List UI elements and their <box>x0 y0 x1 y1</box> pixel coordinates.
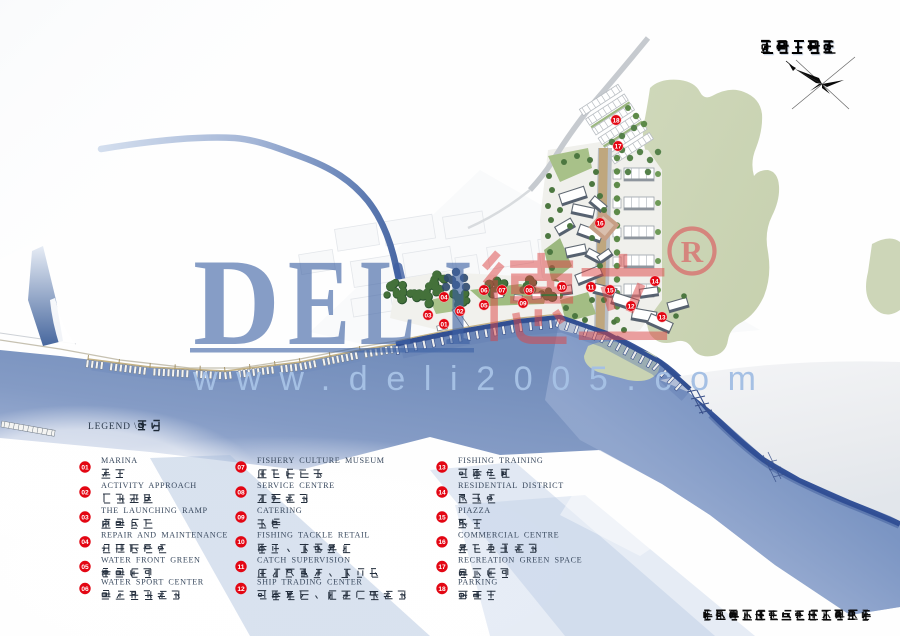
svg-text:R: R <box>681 234 704 269</box>
svg-text:15: 15 <box>438 514 446 521</box>
svg-text:05: 05 <box>81 564 89 571</box>
svg-text:SHIP TRADING CENTER: SHIP TRADING CENTER <box>257 577 362 586</box>
svg-text:17: 17 <box>438 564 446 571</box>
svg-text:PARKING: PARKING <box>458 577 498 586</box>
svg-text:04: 04 <box>440 294 448 301</box>
svg-text:14: 14 <box>651 278 659 285</box>
svg-text:16: 16 <box>596 220 604 227</box>
svg-text:15: 15 <box>606 287 614 294</box>
svg-text:06: 06 <box>480 287 488 294</box>
svg-text:18: 18 <box>438 586 446 593</box>
svg-text:PIAZZA: PIAZZA <box>458 506 491 515</box>
svg-text:16: 16 <box>438 539 446 546</box>
svg-text:01: 01 <box>440 321 448 328</box>
svg-text:01: 01 <box>81 464 89 471</box>
svg-text:08: 08 <box>525 287 533 294</box>
svg-text:FISHERY CULTURE MUSEUM: FISHERY CULTURE MUSEUM <box>257 456 385 465</box>
svg-text:10: 10 <box>237 539 245 546</box>
svg-text:13: 13 <box>658 314 666 321</box>
svg-text:03: 03 <box>424 312 432 319</box>
svg-text:FISHING TRAINING: FISHING TRAINING <box>458 456 543 465</box>
svg-text:07: 07 <box>237 464 245 471</box>
svg-text:COMMERCIAL CENTRE: COMMERCIAL CENTRE <box>458 531 559 540</box>
svg-text:WATER SPORT CENTER: WATER SPORT CENTER <box>101 577 204 586</box>
svg-text:10: 10 <box>558 284 566 291</box>
svg-text:05: 05 <box>480 302 488 309</box>
svg-text:11: 11 <box>238 564 245 571</box>
svg-text:02: 02 <box>456 308 464 315</box>
svg-text:02: 02 <box>81 489 89 496</box>
svg-text:14: 14 <box>438 489 446 496</box>
svg-text:18: 18 <box>612 117 620 124</box>
svg-text:CATERING: CATERING <box>257 506 302 515</box>
svg-text:08: 08 <box>237 489 245 496</box>
svg-text:04: 04 <box>81 539 89 546</box>
svg-text:11: 11 <box>588 284 595 291</box>
svg-text:CATCH SUPERVISION: CATCH SUPERVISION <box>257 555 351 564</box>
svg-text:09: 09 <box>519 300 527 307</box>
svg-text:ACTIVITY APPROACH: ACTIVITY APPROACH <box>101 481 197 490</box>
svg-text:RESIDENTIAL DISTRICT: RESIDENTIAL DISTRICT <box>458 481 564 490</box>
svg-text:07: 07 <box>498 287 506 294</box>
svg-text:SERVICE CENTRE: SERVICE CENTRE <box>257 481 335 490</box>
svg-text:RECREATION GREEN SPACE: RECREATION GREEN SPACE <box>458 555 582 564</box>
svg-text:MARINA: MARINA <box>101 456 138 465</box>
svg-text:THE LAUNCHING RAMP: THE LAUNCHING RAMP <box>101 506 208 515</box>
svg-text:17: 17 <box>614 143 622 150</box>
svg-text:03: 03 <box>81 514 89 521</box>
svg-text:FISHING TACKLE RETAIL: FISHING TACKLE RETAIL <box>257 531 370 540</box>
svg-text:WATER FRONT GREEN: WATER FRONT GREEN <box>101 555 201 564</box>
svg-text:LEGEND \: LEGEND \ <box>88 422 137 432</box>
svg-text:13: 13 <box>438 464 446 471</box>
svg-text:06: 06 <box>81 586 89 593</box>
svg-text:REPAIR AND MAINTENANCE: REPAIR AND MAINTENANCE <box>101 531 228 540</box>
svg-text:09: 09 <box>237 514 245 521</box>
svg-text:12: 12 <box>237 586 245 593</box>
svg-text:12: 12 <box>627 303 635 310</box>
